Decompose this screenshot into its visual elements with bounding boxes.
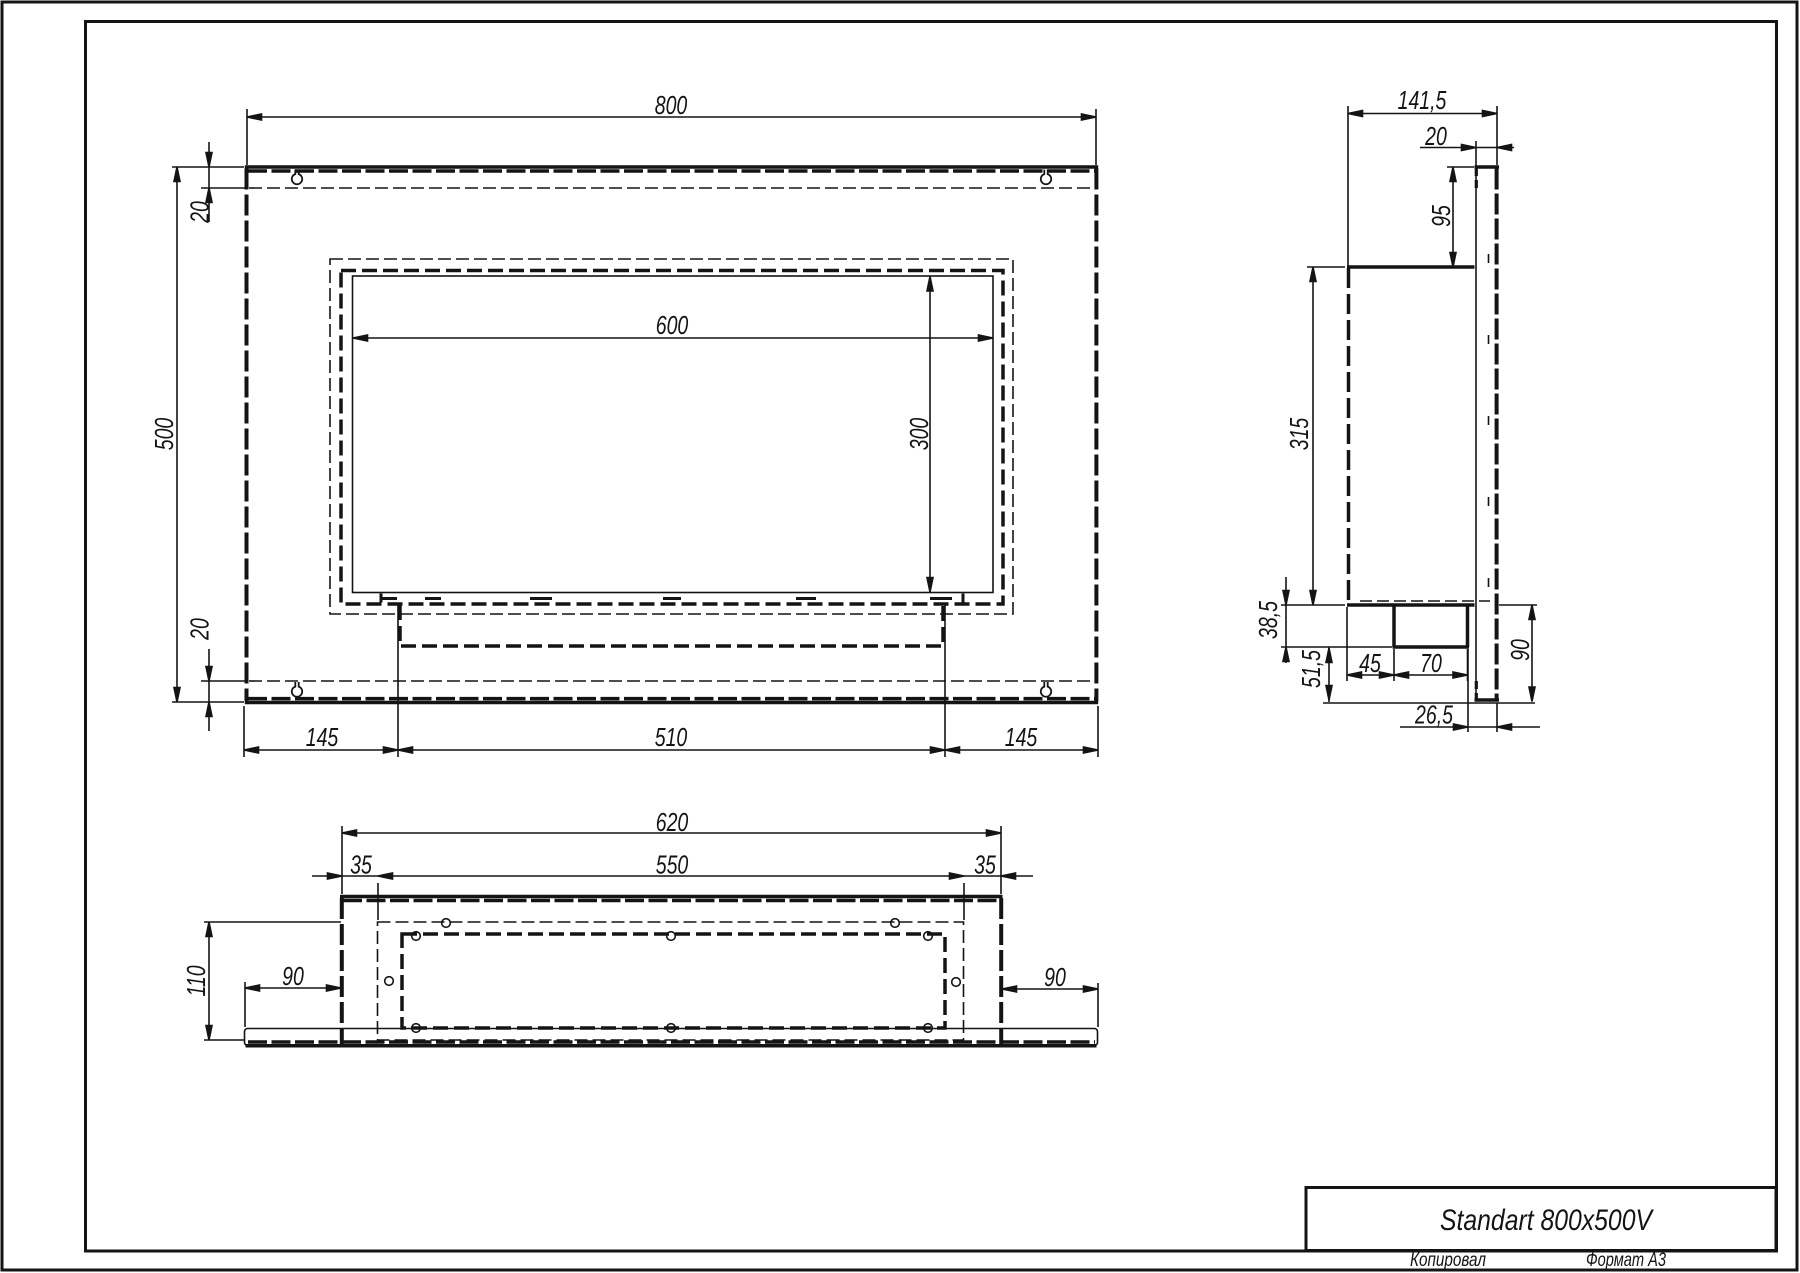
svg-text:90: 90 bbox=[282, 961, 304, 990]
svg-text:315: 315 bbox=[1284, 418, 1313, 451]
svg-text:95: 95 bbox=[1426, 205, 1455, 227]
svg-text:620: 620 bbox=[656, 807, 689, 836]
svg-text:500: 500 bbox=[149, 418, 178, 451]
svg-text:145: 145 bbox=[306, 722, 339, 751]
svg-text:600: 600 bbox=[656, 310, 689, 339]
svg-text:141,5: 141,5 bbox=[1398, 85, 1447, 114]
svg-text:510: 510 bbox=[655, 722, 688, 751]
svg-text:90: 90 bbox=[1044, 962, 1066, 991]
svg-text:550: 550 bbox=[656, 850, 689, 879]
svg-text:35: 35 bbox=[350, 850, 372, 879]
svg-text:90: 90 bbox=[1505, 639, 1534, 661]
svg-text:145: 145 bbox=[1005, 722, 1038, 751]
svg-text:110: 110 bbox=[181, 965, 210, 996]
svg-text:38,5: 38,5 bbox=[1253, 601, 1282, 639]
svg-text:45: 45 bbox=[1359, 648, 1381, 677]
svg-text:20: 20 bbox=[1424, 121, 1447, 150]
svg-text:Формат А3: Формат А3 bbox=[1586, 1250, 1666, 1271]
svg-text:20: 20 bbox=[185, 618, 214, 641]
svg-text:51,5: 51,5 bbox=[1296, 650, 1325, 688]
svg-text:300: 300 bbox=[904, 418, 933, 451]
svg-text:Standart 800x500V: Standart 800x500V bbox=[1440, 1204, 1654, 1237]
svg-text:26,5: 26,5 bbox=[1414, 700, 1453, 729]
svg-text:35: 35 bbox=[974, 850, 996, 879]
svg-text:20: 20 bbox=[185, 201, 214, 224]
svg-text:70: 70 bbox=[1420, 648, 1442, 677]
svg-text:800: 800 bbox=[655, 90, 688, 119]
svg-text:Копировал: Копировал bbox=[1410, 1250, 1486, 1271]
